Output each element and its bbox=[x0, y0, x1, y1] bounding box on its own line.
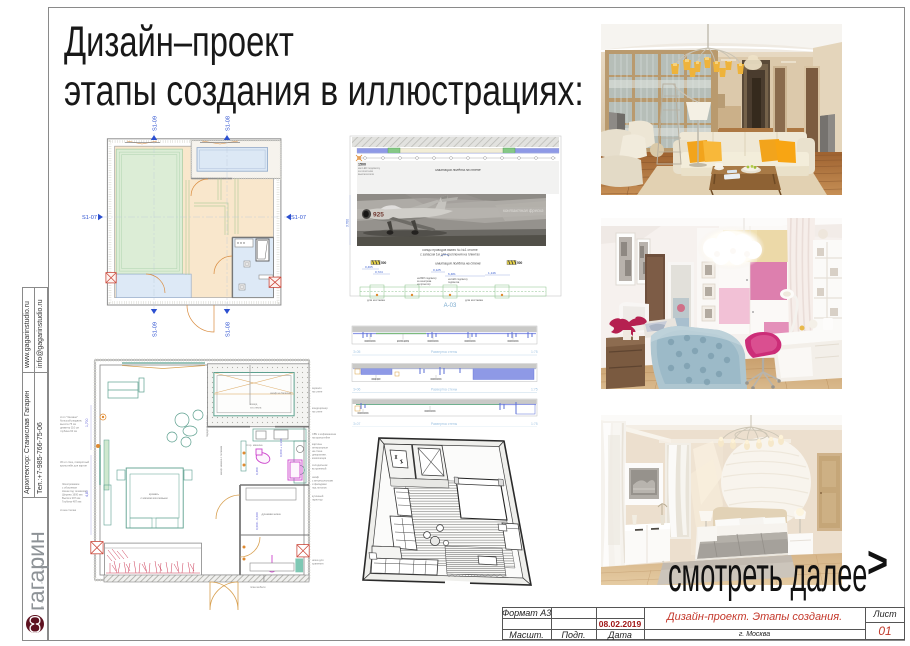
svg-text:гардеробная зона: гардеробная зона bbox=[205, 415, 209, 437]
svg-text:шкаф купе: шкаф купе bbox=[372, 378, 381, 381]
svg-text:S1-08: S1-08 bbox=[226, 322, 232, 337]
svg-text:0,125: 0,125 bbox=[433, 268, 441, 272]
svg-text:шкаф замена с полками: шкаф замена с полками bbox=[219, 445, 223, 475]
svg-text:и фасадами: и фасадами bbox=[312, 482, 327, 486]
svg-text:1,700: 1,700 bbox=[85, 418, 89, 427]
svg-text:S1-09: S1-09 bbox=[153, 116, 159, 131]
svg-text:под потолок: под потолок bbox=[312, 487, 327, 490]
svg-text:для костюма: для костюма bbox=[367, 298, 385, 302]
svg-text:500: 500 bbox=[381, 261, 387, 265]
svg-text:0,600 - 0,600: 0,600 - 0,600 bbox=[255, 512, 259, 530]
svg-text:6,481: 6,481 bbox=[448, 272, 456, 276]
svg-text:имитация полёта на стене: имитация полёта на стене bbox=[435, 168, 480, 172]
svg-text:стена стелаж: стена стелаж bbox=[60, 509, 76, 512]
svg-text:на стене: на стене bbox=[312, 391, 323, 394]
svg-text:1:75: 1:75 bbox=[531, 388, 538, 392]
svg-text:1:75: 1:75 bbox=[531, 350, 538, 354]
svg-text:СВЧ и кофемашина: СВЧ и кофемашина bbox=[312, 432, 336, 436]
svg-text:стол "Чинзано": стол "Чинзано" bbox=[60, 415, 78, 419]
svg-text:Развертка стены: Развертка стены bbox=[431, 422, 458, 426]
svg-text:выключатель: выключатель bbox=[357, 413, 368, 415]
svg-text:большой раздвиж.: большой раздвиж. bbox=[60, 419, 82, 423]
svg-text:А-03: А-03 bbox=[444, 303, 457, 309]
svg-text:выключатель: выключатель bbox=[464, 341, 475, 343]
svg-text:Э-05: Э-05 bbox=[353, 350, 360, 354]
svg-text:с запасом 1м для крепления на: с запасом 1м для крепления на плинтах bbox=[420, 253, 480, 257]
svg-text:S1-08: S1-08 bbox=[226, 116, 232, 131]
svg-text:1:75: 1:75 bbox=[531, 422, 538, 426]
svg-text:концы проводов вывес № №1 стол: концы проводов вывес № №1 столне bbox=[422, 248, 477, 252]
svg-text:шкаф на балконе: шкаф на балконе bbox=[270, 391, 292, 395]
svg-text:из стекла: из стекла bbox=[250, 407, 262, 410]
svg-text:Высота 397 мм: Высота 397 мм bbox=[62, 496, 80, 500]
svg-text:выключатель: выключатель bbox=[424, 411, 435, 413]
svg-text:Развертка стены: Развертка стены bbox=[431, 350, 458, 354]
svg-text:Глубина 487 мм: Глубина 487 мм bbox=[62, 500, 81, 504]
svg-text:S1-09: S1-09 bbox=[153, 322, 159, 337]
svg-text:контактная фреска: контактная фреска bbox=[503, 208, 544, 213]
svg-text:выключатель: выключатель bbox=[364, 341, 375, 343]
svg-text:подсветка: подсветка bbox=[448, 281, 460, 284]
svg-text:1,146: 1,146 bbox=[488, 271, 496, 275]
svg-text:Электрокамин: Электрокамин bbox=[62, 482, 80, 486]
svg-text:Э-06: Э-06 bbox=[353, 388, 360, 392]
svg-text:кухонный: кухонный bbox=[312, 494, 324, 498]
svg-text:0,724: 0,724 bbox=[375, 270, 383, 274]
svg-text:выключатели: выключатели bbox=[358, 173, 375, 176]
svg-text:кронштейн для картин: кронштейн для картин bbox=[60, 464, 88, 468]
svg-text:хранения: хранения bbox=[312, 563, 324, 566]
svg-text:Развертка стены: Развертка стены bbox=[431, 388, 458, 392]
svg-text:S1-07: S1-07 bbox=[291, 215, 306, 221]
svg-text:0,600 + 3,330: 0,600 + 3,330 bbox=[279, 438, 283, 457]
svg-text:план мебели: план мебели bbox=[250, 585, 266, 589]
svg-text:стир. машина: стир. машина bbox=[246, 444, 263, 447]
svg-text:композиция: композиция bbox=[312, 457, 327, 460]
svg-text:высота 75 см: высота 75 см bbox=[60, 422, 76, 426]
svg-text:гарнитур: гарнитур bbox=[312, 499, 323, 502]
svg-text:на стене: на стене bbox=[312, 411, 323, 414]
svg-text:Ниша под телевизор: Ниша под телевизор bbox=[62, 489, 87, 493]
svg-text:36 шт спец. поворотный: 36 шт спец. поворотный bbox=[60, 460, 90, 464]
svg-text:глубина 60 см: глубина 60 см bbox=[60, 429, 77, 433]
svg-text:встроенный: встроенный bbox=[312, 467, 327, 471]
svg-text:выключатель: выключатель bbox=[430, 379, 441, 381]
svg-text:0,480: 0,480 bbox=[255, 467, 259, 475]
svg-text:Ширина 1600 мм: Ширина 1600 мм bbox=[62, 493, 83, 497]
svg-text:диаметр 110 см: диаметр 110 см bbox=[60, 426, 79, 430]
svg-text:S1-07: S1-07 bbox=[82, 215, 97, 221]
svg-text:с обогревом: с обогревом bbox=[62, 486, 77, 490]
svg-text:3.700: 3.700 bbox=[346, 219, 350, 227]
svg-text:Э-07: Э-07 bbox=[353, 422, 360, 426]
svg-text:500: 500 bbox=[517, 261, 523, 265]
svg-text:выключатель: выключатель bbox=[507, 341, 518, 343]
svg-text:шкаф: шкаф bbox=[312, 475, 320, 479]
svg-text:с мягким изголовьем: с мягким изголовьем bbox=[140, 496, 167, 500]
svg-text:для костюма: для костюма bbox=[465, 298, 483, 302]
svg-text:имитация полёта на стене: имитация полёта на стене bbox=[435, 262, 480, 266]
svg-text:1500: 1500 bbox=[358, 163, 366, 167]
svg-text:душевая ниша: душевая ниша bbox=[261, 512, 280, 516]
svg-text:на кронштейне: на кронштейне bbox=[312, 436, 331, 440]
svg-text:выключатель: выключатель bbox=[427, 341, 438, 343]
svg-text:розетка центр: розетка центр bbox=[397, 341, 409, 343]
svg-text:925: 925 bbox=[373, 212, 384, 219]
svg-text:0,465: 0,465 bbox=[365, 265, 373, 269]
